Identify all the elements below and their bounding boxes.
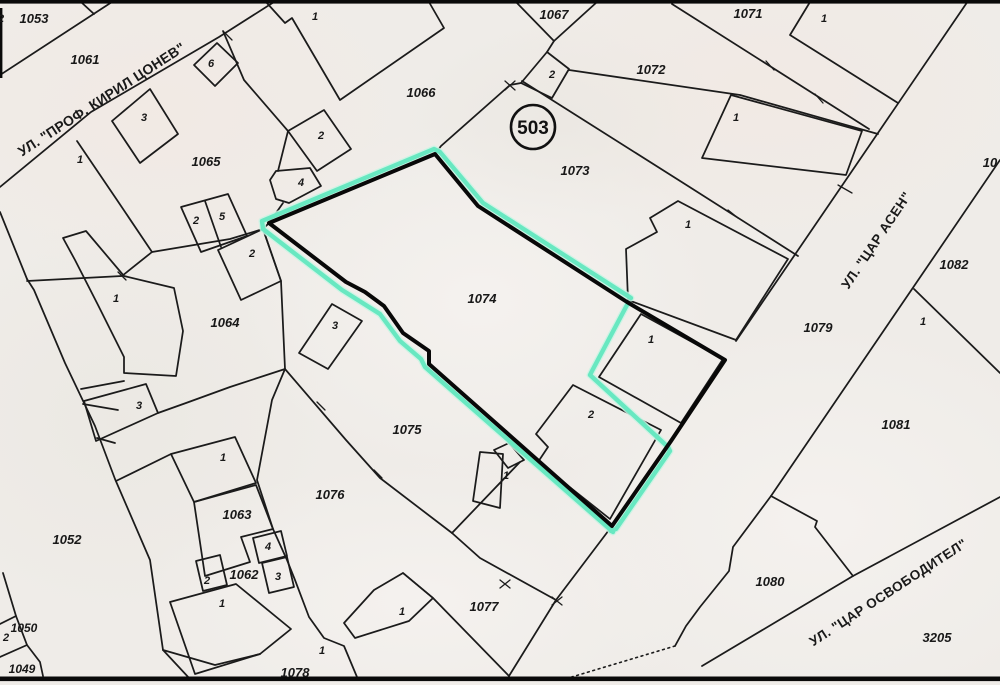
svg-text:1052: 1052 (53, 532, 83, 547)
svg-text:1065: 1065 (192, 154, 222, 169)
svg-text:1: 1 (821, 13, 827, 25)
svg-text:2: 2 (192, 215, 199, 227)
svg-text:2: 2 (203, 575, 210, 587)
svg-text:3: 3 (136, 400, 142, 412)
svg-text:6: 6 (208, 58, 215, 70)
svg-text:503: 503 (517, 118, 549, 139)
svg-text:1: 1 (648, 334, 654, 346)
svg-text:1077: 1077 (470, 599, 500, 614)
svg-text:1: 1 (319, 645, 325, 657)
svg-text:1063: 1063 (223, 507, 253, 522)
svg-text:4: 4 (264, 541, 271, 553)
svg-text:1071: 1071 (734, 6, 763, 21)
svg-text:1: 1 (220, 452, 226, 464)
svg-text:3: 3 (141, 112, 147, 124)
svg-text:2: 2 (2, 632, 9, 644)
svg-text:1: 1 (503, 470, 509, 482)
svg-text:3: 3 (332, 320, 338, 332)
svg-text:1081: 1081 (882, 417, 911, 432)
svg-text:2: 2 (248, 248, 255, 260)
svg-text:1049: 1049 (9, 662, 36, 676)
svg-text:1: 1 (312, 11, 318, 23)
svg-text:1064: 1064 (211, 315, 241, 330)
svg-text:2: 2 (317, 130, 324, 142)
svg-text:1061: 1061 (71, 52, 100, 67)
svg-text:5: 5 (219, 211, 226, 223)
svg-text:2: 2 (0, 13, 4, 25)
svg-text:1078: 1078 (281, 665, 311, 680)
svg-text:1076: 1076 (316, 487, 346, 502)
svg-text:1: 1 (733, 112, 739, 124)
svg-text:1050: 1050 (11, 621, 38, 635)
svg-text:1073: 1073 (561, 163, 591, 178)
svg-text:1: 1 (113, 293, 119, 305)
svg-text:1079: 1079 (804, 320, 834, 335)
svg-text:1: 1 (920, 316, 926, 328)
svg-text:1067: 1067 (540, 7, 570, 22)
svg-text:1075: 1075 (393, 422, 423, 437)
svg-text:1082: 1082 (940, 257, 970, 272)
svg-text:1062: 1062 (230, 567, 260, 582)
svg-text:1053: 1053 (20, 11, 50, 26)
svg-text:1: 1 (77, 154, 83, 166)
svg-text:1: 1 (219, 598, 225, 610)
svg-text:3205: 3205 (923, 630, 953, 645)
svg-text:1066: 1066 (407, 85, 437, 100)
svg-text:1074: 1074 (468, 291, 498, 306)
svg-text:10: 10 (983, 155, 998, 170)
svg-text:2: 2 (587, 409, 594, 421)
svg-text:1: 1 (685, 219, 691, 231)
svg-text:3: 3 (275, 571, 281, 583)
svg-text:2: 2 (548, 69, 555, 81)
svg-text:1080: 1080 (756, 574, 786, 589)
svg-text:1: 1 (399, 606, 405, 618)
svg-text:1072: 1072 (637, 62, 667, 77)
svg-text:4: 4 (297, 177, 304, 189)
